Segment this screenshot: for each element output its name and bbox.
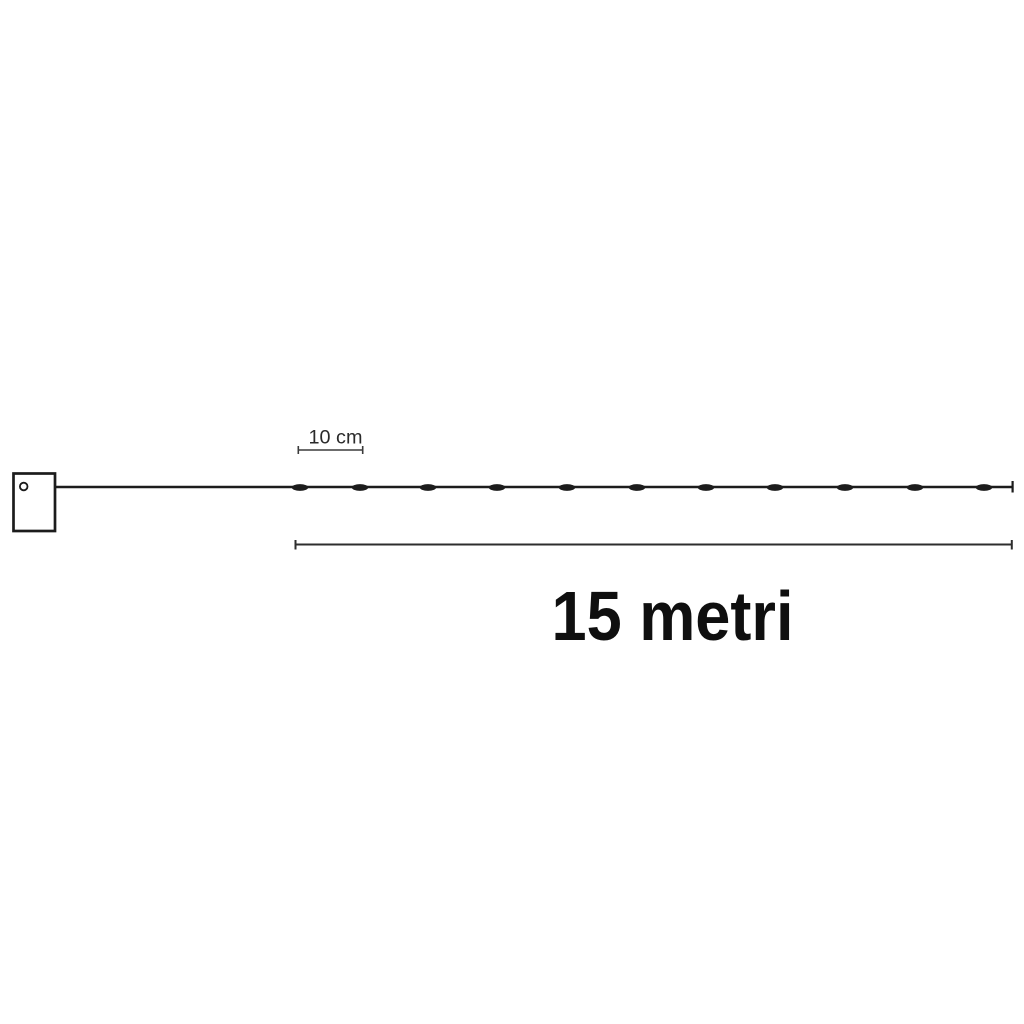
led-bulb xyxy=(489,484,505,491)
light-string-diagram: 10 cm 15 metri xyxy=(0,0,1024,1024)
controller-box xyxy=(14,474,56,532)
diagram-canvas: 10 cm 15 metri xyxy=(0,0,1024,1024)
led-bulb xyxy=(629,484,645,491)
led-bulb xyxy=(907,484,923,491)
led-bulb xyxy=(976,484,992,491)
led-bulb xyxy=(420,484,436,491)
spacing-dimension: 10 cm xyxy=(298,428,363,455)
length-dimension: 15 metri xyxy=(296,540,1013,655)
length-label: 15 metri xyxy=(552,577,794,655)
led-bulb xyxy=(352,484,368,491)
led-bulb xyxy=(292,484,308,491)
led-bulb xyxy=(837,484,853,491)
spacing-label: 10 cm xyxy=(309,428,363,449)
led-bulb xyxy=(767,484,783,491)
led-bulb xyxy=(698,484,714,491)
led-bulb xyxy=(559,484,575,491)
cable-hole-icon xyxy=(20,483,28,491)
